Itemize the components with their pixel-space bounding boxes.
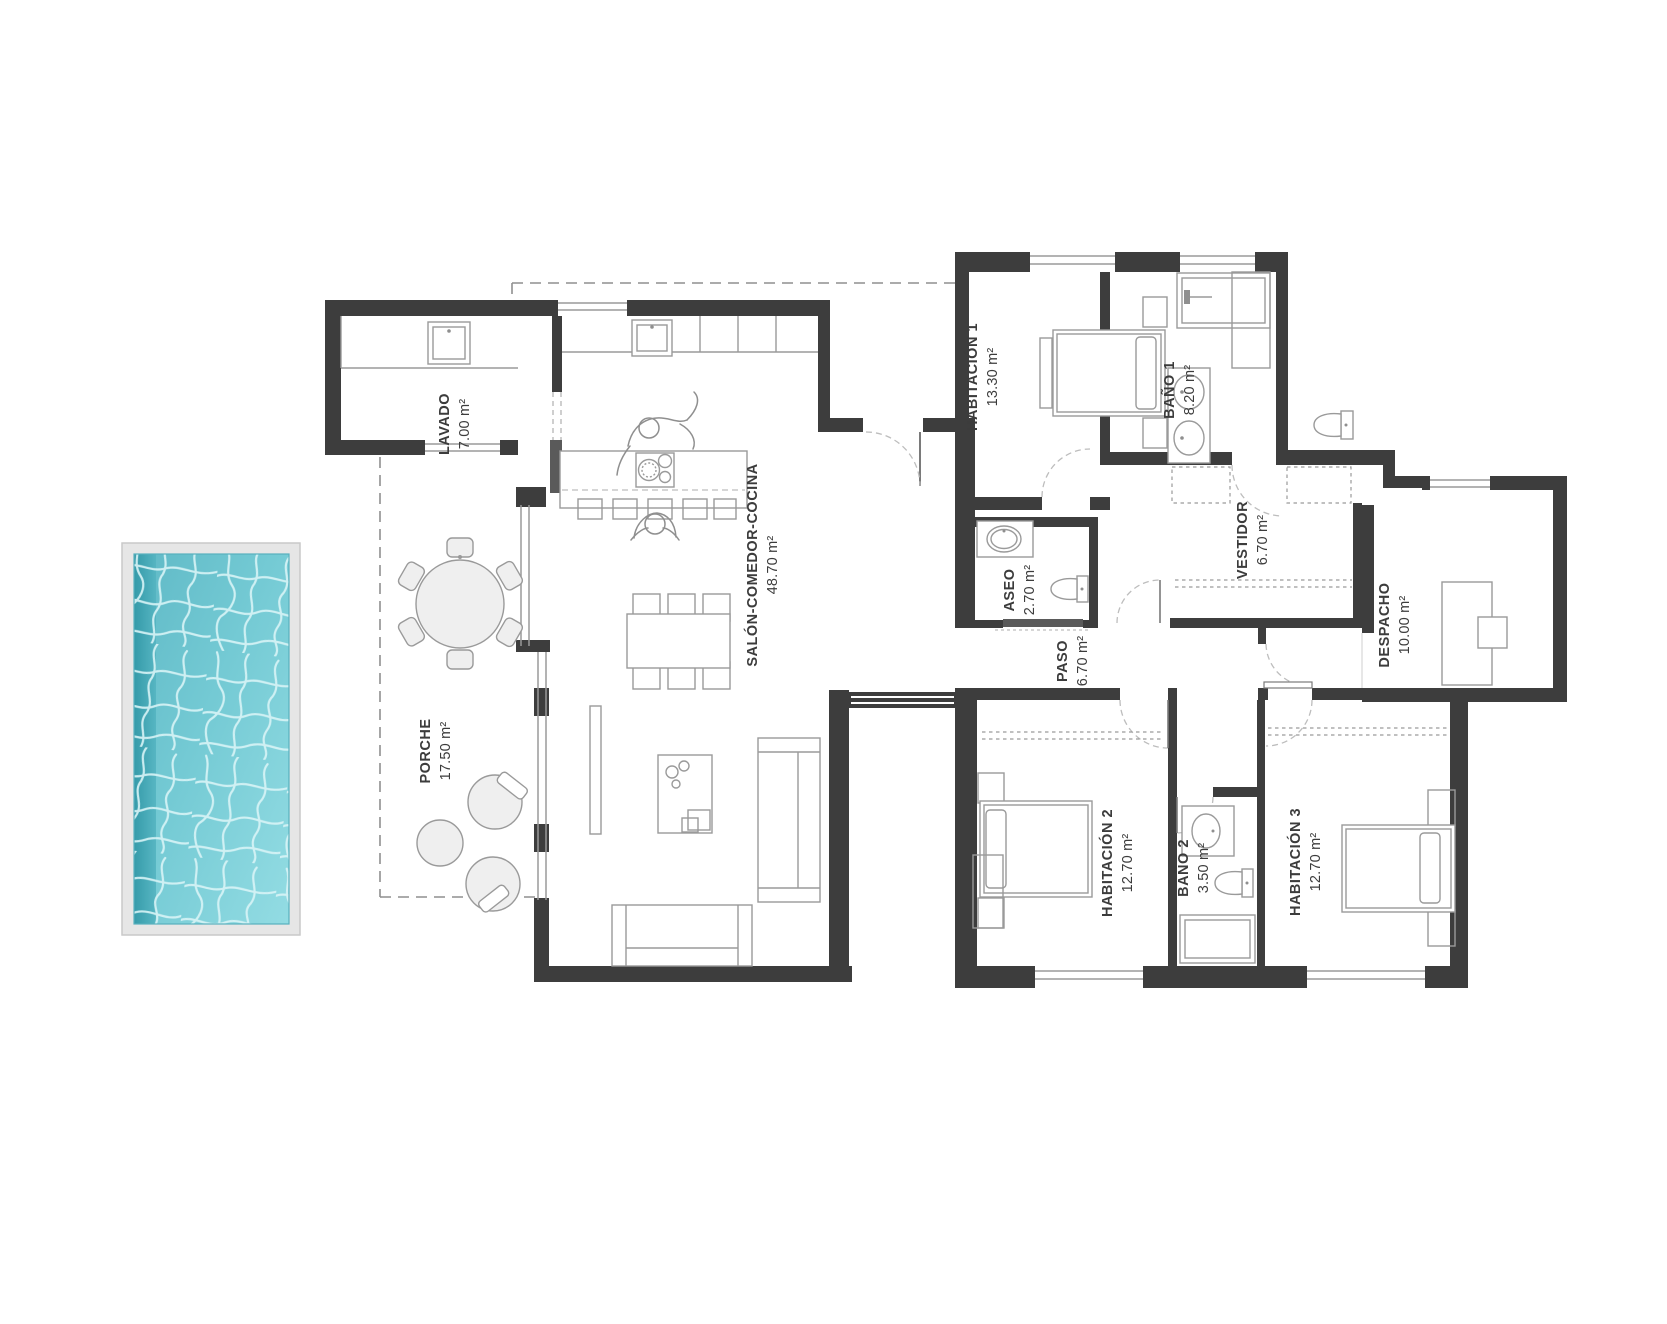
room-area-bano1: 8.20 m² xyxy=(1182,365,1198,416)
kitchen-counter xyxy=(562,316,818,356)
porch-dining-set xyxy=(397,538,524,669)
door-habitacion3 xyxy=(1264,644,1312,746)
room-label-vestidor: VESTIDOR xyxy=(1235,501,1251,579)
nightstand-icon xyxy=(978,773,1004,803)
room-area-vestidor: 6.70 m² xyxy=(1255,515,1271,566)
sofa-icon xyxy=(758,738,820,902)
toilet-icon xyxy=(1314,411,1353,439)
window xyxy=(1307,971,1425,979)
dining-table xyxy=(627,594,730,689)
chair-icon xyxy=(447,650,473,669)
room-area-habitacion2: 12.70 m² xyxy=(1120,834,1136,893)
room-label-aseo: ASEO xyxy=(1002,568,1018,611)
shower-icon xyxy=(1177,273,1270,328)
sofa-icon xyxy=(612,905,752,966)
chair-icon xyxy=(447,538,473,557)
room-label-habitacion2: HABITACIÓN 2 xyxy=(1098,809,1116,917)
door-habitacion2 xyxy=(1120,700,1168,748)
room-area-porche: 17.50 m² xyxy=(438,722,454,781)
door-vestidor xyxy=(1117,580,1160,623)
room-label-lavado: LAVADO xyxy=(437,393,453,455)
room-label-paso: PASO xyxy=(1055,640,1071,682)
closet-icon xyxy=(1268,728,1448,735)
lavado-counter xyxy=(341,316,518,368)
bed-icon xyxy=(1342,790,1455,946)
sink-icon xyxy=(977,521,1033,557)
window xyxy=(558,303,627,310)
room-area-habitacion3: 12.70 m² xyxy=(1308,833,1324,892)
coffee-table xyxy=(658,755,712,833)
nightstand-icon xyxy=(978,898,1004,928)
porch-lounge xyxy=(417,771,529,914)
floor-plan-drawing: LAVADO 7.00 m² SALÓN-COMEDOR-COCINA 48.7… xyxy=(0,0,1667,1324)
closet-icon xyxy=(982,732,1162,739)
room-area-aseo: 2.70 m² xyxy=(1022,565,1038,616)
shower-icon xyxy=(1180,915,1255,963)
nightstand-icon xyxy=(1143,418,1167,448)
window xyxy=(1430,480,1490,487)
room-area-habitacion1: 13.30 m² xyxy=(985,348,1001,407)
floor-plan-page: LAVADO 7.00 m² SALÓN-COMEDOR-COCINA 48.7… xyxy=(0,0,1667,1324)
room-label-habitacion3: HABITACIÓN 3 xyxy=(1286,808,1304,916)
window xyxy=(1035,971,1143,979)
window xyxy=(1030,256,1115,264)
room-label-porche: PORCHE xyxy=(418,718,434,783)
room-label-bano1: BAÑO 1 xyxy=(1160,361,1178,419)
room-label-salon: SALÓN-COMEDOR-COCINA xyxy=(743,463,761,666)
roof-outline xyxy=(512,283,955,301)
desk-chair-icon xyxy=(1478,617,1507,648)
kitchen-island xyxy=(560,451,747,519)
faucet-icon xyxy=(447,329,451,333)
room-area-salon: 48.70 m² xyxy=(765,536,781,595)
entry-door xyxy=(866,432,920,486)
room-area-bano2: 3.50 m² xyxy=(1196,843,1212,894)
window xyxy=(1180,256,1255,264)
toilet-icon xyxy=(1051,576,1088,602)
room-label-despacho: DESPACHO xyxy=(1377,582,1393,667)
toilet-icon xyxy=(1215,869,1253,897)
room-area-paso: 6.70 m² xyxy=(1075,636,1091,687)
room-label-habitacion1: HABITACIÓN 1 xyxy=(963,323,981,431)
side-table-icon xyxy=(417,820,463,866)
bed-icon xyxy=(973,773,1092,928)
pool xyxy=(122,543,300,935)
nightstand-icon xyxy=(1143,297,1167,327)
desk-icon xyxy=(1442,582,1507,685)
faucet-icon xyxy=(650,325,654,329)
round-table-icon xyxy=(416,560,504,648)
room-area-lavado: 7.00 m² xyxy=(457,399,473,450)
pool-caustics xyxy=(134,554,289,924)
tv-sideboard xyxy=(590,706,601,834)
room-area-despacho: 10.00 m² xyxy=(1397,596,1413,655)
room-label-bano2: BAÑO 2 xyxy=(1174,839,1192,897)
sliding-door-aseo xyxy=(995,619,1088,630)
door-habitacion1 xyxy=(1042,449,1090,497)
